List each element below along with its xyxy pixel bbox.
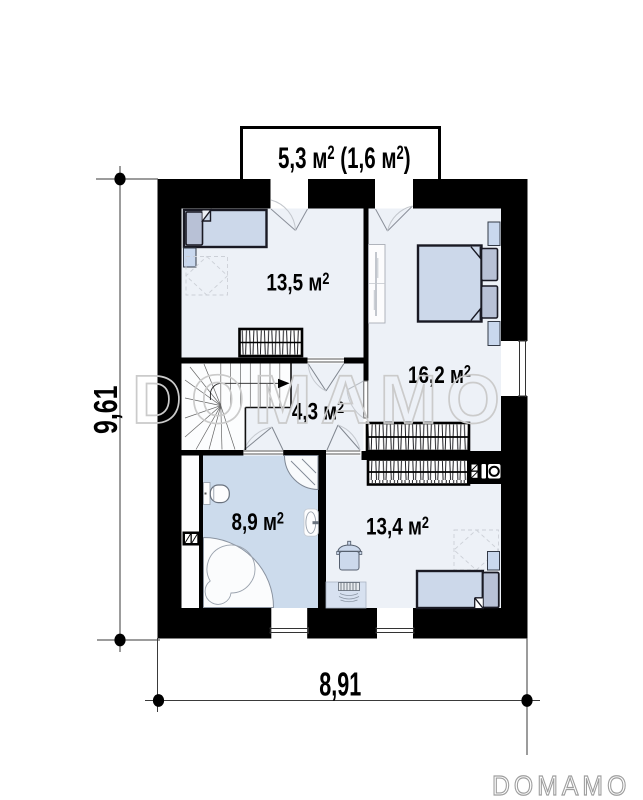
svg-text:DOMAMO: DOMAMO [492,770,630,800]
svg-text:5,3 м2 (1,6 м2): 5,3 м2 (1,6 м2) [278,142,411,175]
svg-text:13,5 м2: 13,5 м2 [266,270,329,297]
svg-text:9,61: 9,61 [87,386,124,435]
svg-text:8,91: 8,91 [319,666,361,703]
svg-text:13,4 м2: 13,4 м2 [366,514,429,541]
svg-text:DOMAMO: DOMAMO [132,361,509,438]
svg-text:8,9 м2: 8,9 м2 [232,509,285,536]
